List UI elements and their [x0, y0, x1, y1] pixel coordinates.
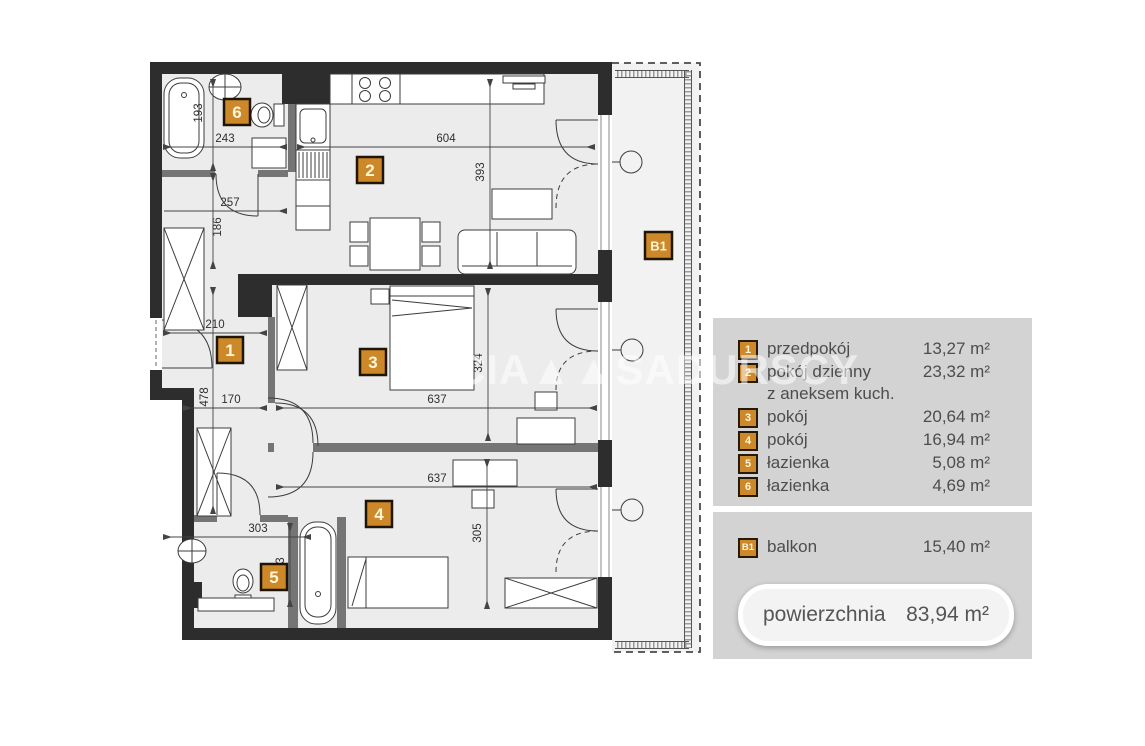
badge-label: 1: [225, 341, 234, 360]
room-name-line2: z aneksem kuch.: [767, 383, 923, 405]
room-badge-1: 1: [217, 337, 243, 363]
legend-badge-1: 1: [738, 340, 758, 360]
dim-label: 637: [427, 473, 446, 485]
room-name: pokój: [767, 406, 923, 428]
single-bed: [348, 557, 448, 608]
double-bed: [390, 286, 474, 390]
room-name: przedpokój: [767, 338, 923, 360]
wardrobe: [505, 578, 597, 608]
legend-row-6: 6 łazienka 4,69 m²: [738, 475, 990, 497]
legend-badge-5: 5: [738, 454, 758, 474]
room-area: 20,64 m²: [923, 406, 990, 428]
dim-label: 324: [473, 353, 485, 373]
sink-icon: [209, 74, 241, 100]
room-name: pokój dzienny z aneksem kuch.: [767, 361, 923, 405]
room-badge-6: 6: [224, 99, 250, 125]
legend-row-1: 1 przedpokój 13,27 m²: [738, 338, 990, 360]
room-badge-b1: B1: [645, 232, 672, 259]
dim-label: 243: [215, 133, 234, 145]
floorplan-page: 604 393 243 193 257 186 210 478 170 637 …: [0, 0, 1145, 746]
total-area-box: powierzchnia 83,94 m²: [738, 584, 1014, 646]
coffee-table: [492, 189, 552, 219]
legend-badge-b1: B1: [738, 538, 758, 558]
total-area-label: powierzchnia: [763, 603, 886, 627]
room-name-line1: pokój dzienny: [767, 361, 923, 383]
sofa: [458, 230, 576, 274]
room-name: pokój: [767, 429, 923, 451]
dim-label: 257: [220, 197, 239, 209]
room-name: balkon: [767, 536, 923, 558]
washing-machine: [252, 138, 286, 168]
dim-label: 637: [427, 394, 446, 406]
desk: [517, 418, 575, 444]
room-name: łazienka: [767, 475, 932, 497]
toilet-icon: [251, 103, 284, 127]
dim-label: 604: [436, 133, 456, 145]
wardrobe: [164, 228, 204, 330]
legend-badge-4: 4: [738, 431, 758, 451]
room-area: 16,94 m²: [923, 429, 990, 451]
room-area: 4,69 m²: [932, 475, 990, 497]
room-badge-3: 3: [360, 349, 386, 375]
dim-label: 478: [199, 387, 211, 406]
dim-label: 210: [205, 319, 224, 331]
dim-label: 303: [248, 523, 267, 535]
vanity-counter: [198, 598, 274, 611]
balcony-openings: [598, 115, 612, 577]
dim-label: 393: [475, 162, 487, 181]
room-area: 13,27 m²: [923, 338, 990, 360]
room-area: 5,08 m²: [932, 452, 990, 474]
legend-row-balcony: B1 balkon 15,40 m²: [738, 536, 990, 558]
sink-icon: [178, 539, 206, 563]
legend-badge-3: 3: [738, 408, 758, 428]
room-badge-2: 2: [357, 157, 383, 183]
room-area: 15,40 m²: [923, 536, 990, 558]
dish-rack: [296, 150, 330, 180]
kitchen-cabinet: [296, 180, 330, 206]
room-name: łazienka: [767, 452, 932, 474]
total-area-value: 83,94 m²: [906, 603, 989, 627]
legend-badge-6: 6: [738, 477, 758, 497]
room-badge-5: 5: [261, 564, 287, 590]
badge-label: B1: [650, 239, 667, 254]
badge-label: 5: [269, 568, 278, 587]
badge-label: 6: [232, 103, 241, 122]
legend-row-2: 2 pokój dzienny z aneksem kuch. 23,32 m²: [738, 361, 990, 405]
legend-badge-2: 2: [738, 363, 758, 383]
dim-label: 193: [193, 103, 205, 122]
badge-label: 3: [368, 353, 377, 372]
chair: [472, 490, 494, 508]
desk: [453, 460, 517, 486]
badge-label: 2: [365, 161, 374, 180]
legend-row-3: 3 pokój 20,64 m²: [738, 406, 990, 428]
chair: [535, 392, 557, 410]
dim-label: 186: [212, 217, 224, 236]
room-area: 23,32 m²: [923, 361, 990, 383]
legend-rooms-panel: 1 przedpokój 13,27 m² 2 pokój dzienny z …: [713, 318, 1032, 506]
wardrobe: [197, 428, 231, 516]
nightstand: [371, 289, 389, 304]
legend-row-4: 4 pokój 16,94 m²: [738, 429, 990, 451]
dim-label: 305: [472, 523, 484, 542]
room-badge-4: 4: [366, 501, 392, 527]
kitchen-sink: [296, 104, 330, 150]
kitchen-cabinet: [296, 206, 330, 230]
legend-row-5: 5 łazienka 5,08 m²: [738, 452, 990, 474]
badge-label: 4: [374, 505, 384, 524]
dim-label: 170: [221, 394, 240, 406]
wardrobe: [277, 285, 307, 370]
